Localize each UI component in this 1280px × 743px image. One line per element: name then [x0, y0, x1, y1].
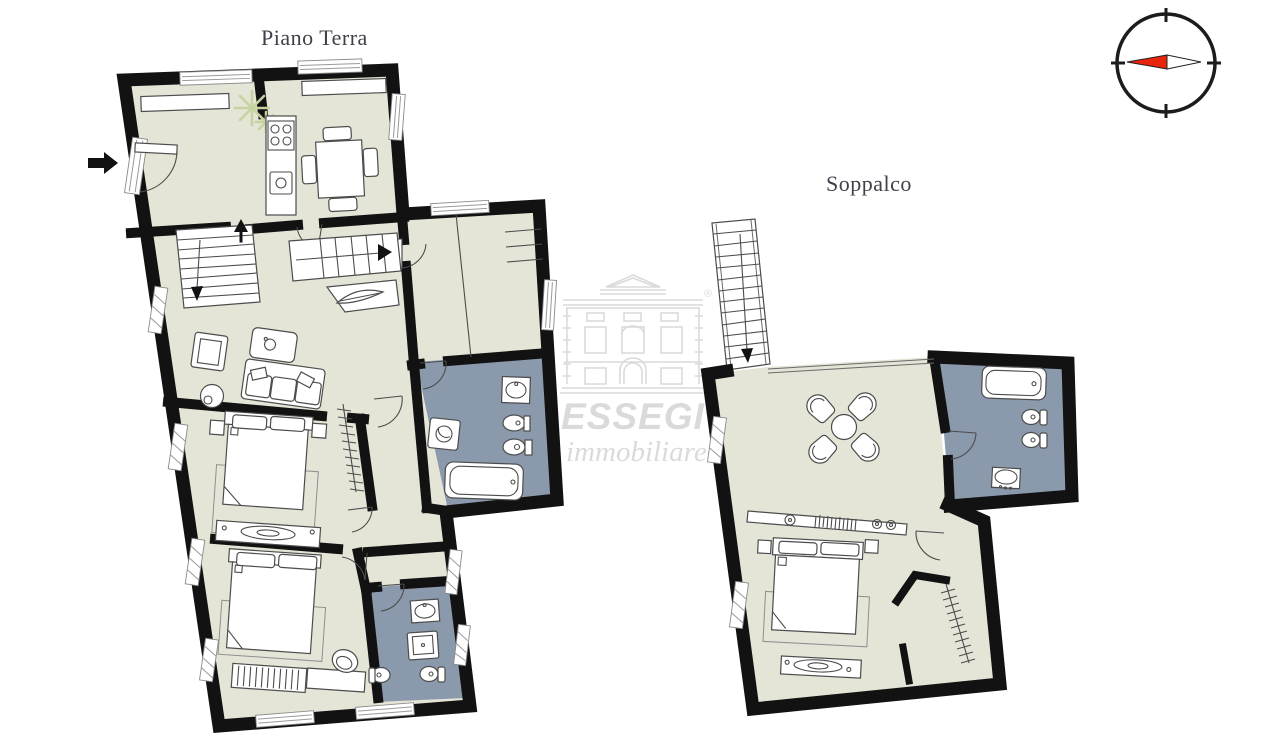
bathtub-icon — [444, 462, 523, 501]
round-table — [832, 415, 857, 440]
bidet-icon — [503, 415, 530, 431]
sink-icon — [502, 377, 531, 404]
armchair — [191, 332, 229, 371]
radiator — [231, 663, 306, 692]
side-table — [201, 385, 224, 408]
compass-icon — [1110, 7, 1222, 119]
toilet-icon — [420, 667, 445, 683]
sink-icon — [991, 467, 1020, 489]
bidet-icon — [369, 668, 390, 684]
floorplan-page: ® ESSEGI immobiliare — [0, 0, 1280, 743]
toilet-icon — [1022, 410, 1047, 426]
shower-icon — [407, 631, 439, 660]
title-piano-terra: Piano Terra — [261, 25, 368, 51]
soppalco-plan — [707, 219, 1072, 709]
staircase-down — [176, 225, 260, 308]
entrance-arrow — [88, 152, 118, 174]
dresser-2 — [306, 668, 365, 692]
bathtub-icon — [981, 366, 1046, 400]
soppalco-dresser — [781, 656, 862, 678]
piano-terra-plan — [88, 59, 557, 727]
toilet-icon — [503, 439, 532, 455]
soppalco-staircase — [712, 219, 770, 370]
sink-icon — [410, 599, 439, 623]
bidet-icon — [1022, 433, 1047, 449]
coffee-table — [249, 327, 298, 363]
floorplans-drawing — [0, 0, 1280, 743]
title-soppalco: Soppalco — [826, 171, 912, 197]
sideboard — [141, 93, 229, 111]
washing-machine-icon — [428, 418, 461, 451]
